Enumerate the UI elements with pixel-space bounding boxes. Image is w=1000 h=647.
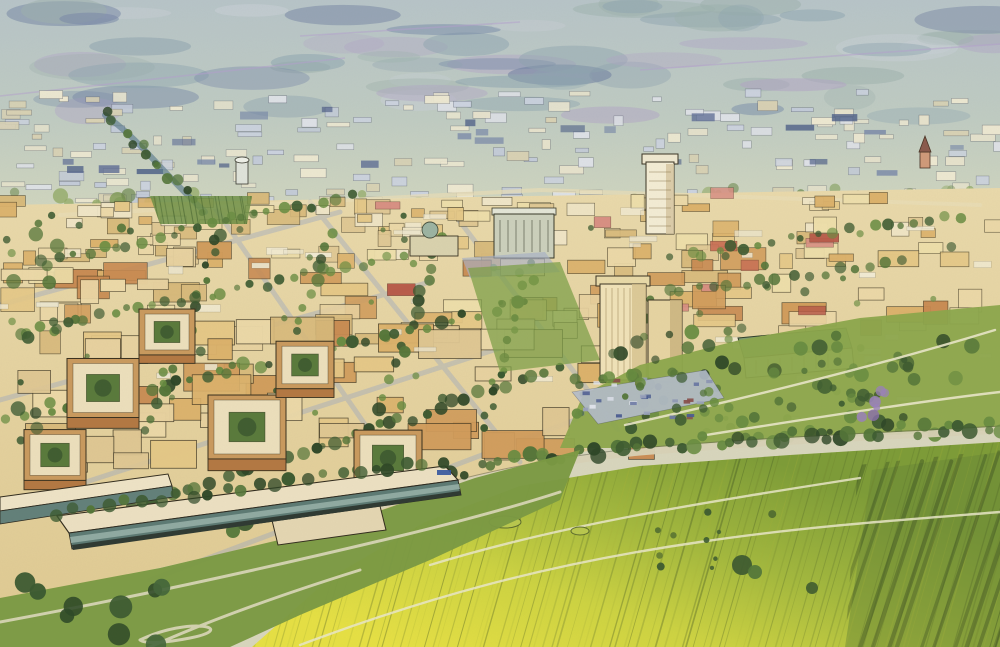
- watercolor-aerial-illustration: Watercolor aerial perspective illustrati…: [0, 0, 1000, 647]
- paint-layers: [0, 0, 1000, 647]
- paper-grain: [0, 0, 1000, 647]
- campus-aerial-painting: Watercolor aerial perspective illustrati…: [0, 0, 1000, 647]
